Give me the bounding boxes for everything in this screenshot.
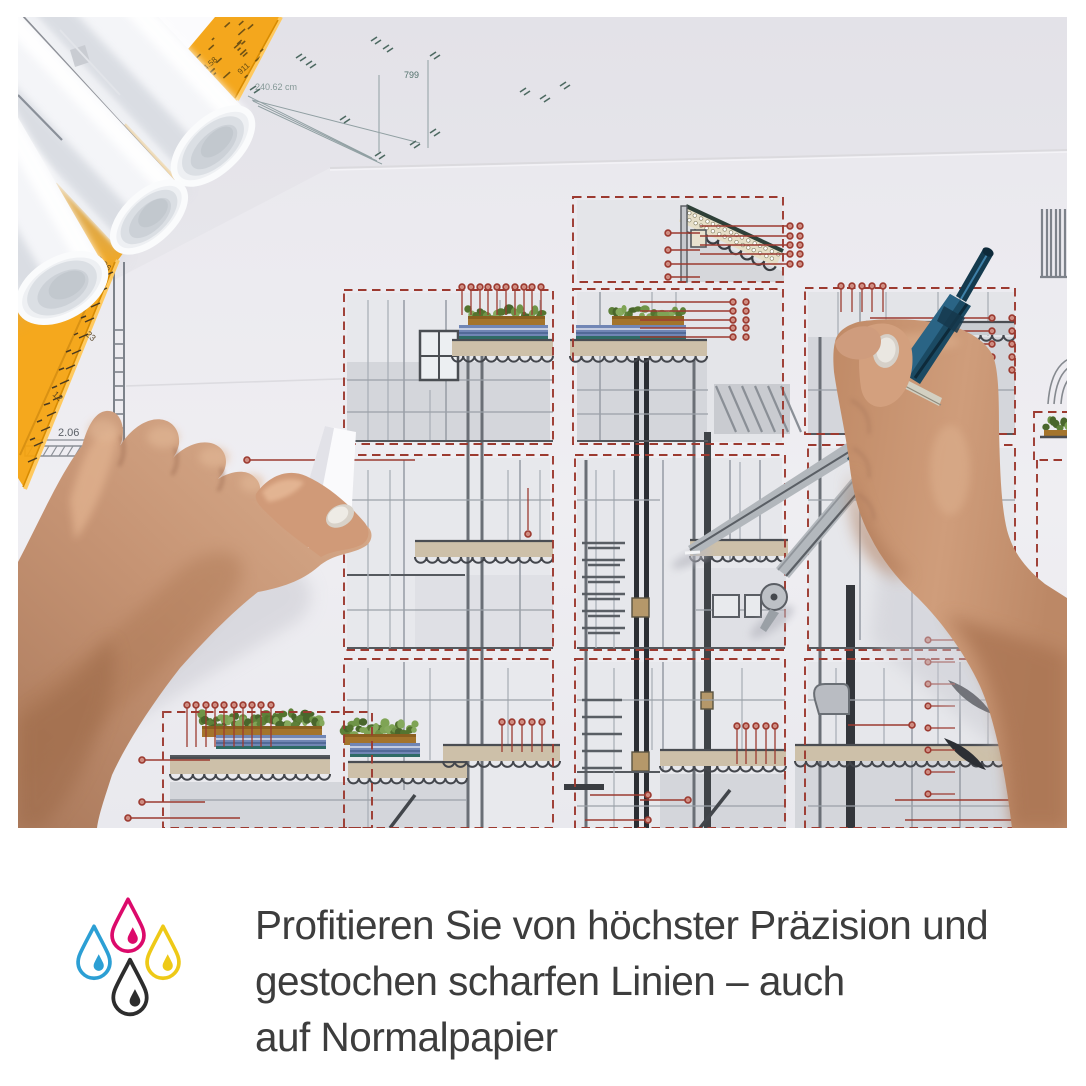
svg-text:799: 799 <box>404 70 419 80</box>
svg-text:2.06: 2.06 <box>58 427 79 439</box>
svg-text:auf Normalpapier: auf Normalpapier <box>255 1014 558 1060</box>
svg-text:Profitieren Sie von höchster P: Profitieren Sie von höchster Präzision u… <box>255 902 988 948</box>
svg-text:240.62 cm: 240.62 cm <box>255 82 297 92</box>
svg-text:gestochen scharfen Linien – au: gestochen scharfen Linien – auch <box>255 958 845 1004</box>
